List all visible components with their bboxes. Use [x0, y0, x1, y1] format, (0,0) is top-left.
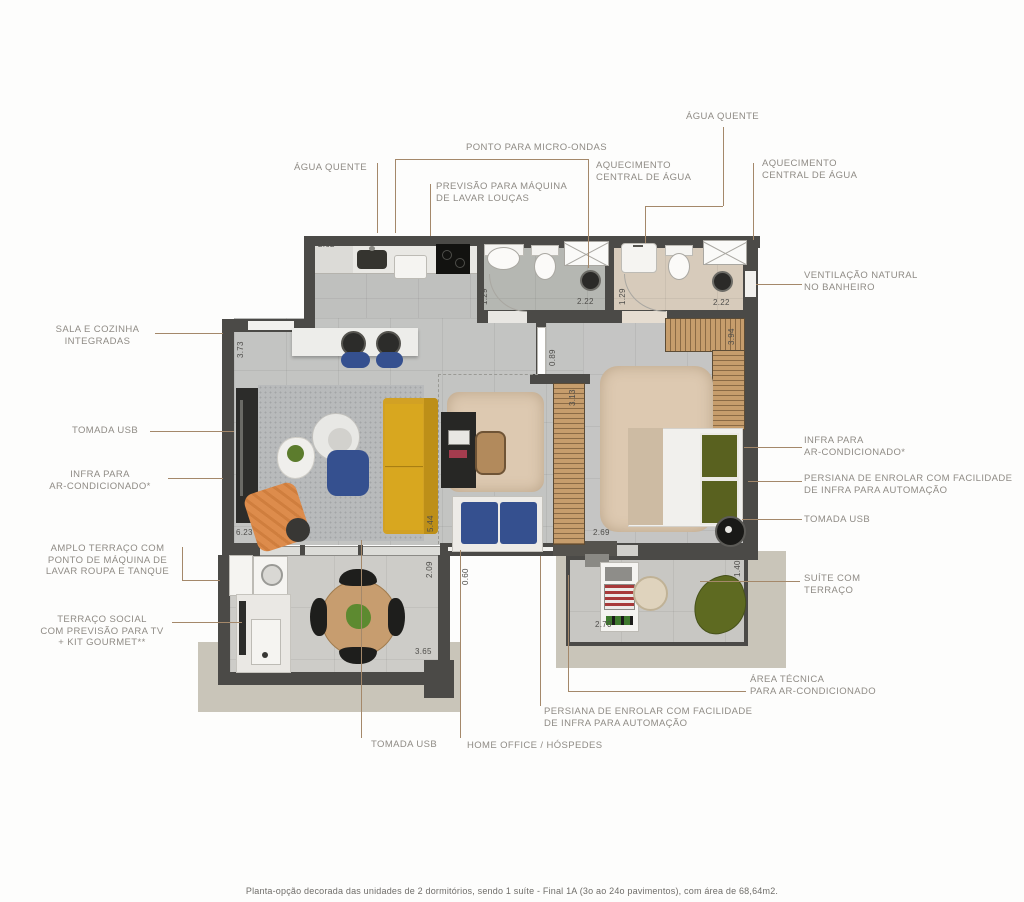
sliding-door-mullion-1	[300, 545, 305, 555]
dim-2-70: 2.70	[595, 620, 612, 629]
wall-kitchen-bath	[477, 244, 484, 318]
leader-infra-left	[168, 478, 223, 479]
label-ponto-micro-ondas: PONTO PARA MICRO-ONDAS	[466, 142, 607, 154]
washing-machine-drum	[261, 564, 283, 586]
dim-2-22-b: 2.22	[713, 298, 730, 307]
dim-2-62: 2.62	[318, 240, 335, 249]
leader-agua-quente-top-v1	[723, 127, 724, 206]
office-desk-item	[449, 450, 467, 458]
leader-sala-cozinha	[155, 333, 223, 334]
bath-suite-tap	[633, 245, 643, 247]
dim-6-23: 6.23	[236, 528, 253, 537]
laundry-tank	[229, 555, 253, 596]
bath-suite-shower	[703, 240, 747, 265]
sofa-bed-cushion-1	[461, 502, 498, 544]
label-tomada-usb-right: TOMADA USB	[804, 514, 870, 526]
sofa-bed-cushion-2	[500, 502, 537, 544]
bath-social-basin	[487, 247, 520, 270]
bar-stool-1	[341, 352, 370, 368]
label-persiana-right: PERSIANA DE ENROLAR COM FACILIDADE DE IN…	[804, 473, 1012, 496]
kitchen-faucet	[369, 246, 375, 251]
terrace-grill	[251, 619, 281, 665]
door-gap-bath-social	[488, 311, 527, 323]
leader-ponto-v2	[588, 159, 589, 268]
dim-1-29-b: 1.29	[618, 288, 627, 305]
pouf-dark	[286, 518, 310, 542]
window-bathroom-ventilation	[745, 271, 756, 297]
bath-suite-basin	[621, 243, 657, 273]
office-boundary-dashed-v	[438, 374, 439, 544]
terrace-tv	[239, 601, 246, 655]
cooktop-oven	[436, 244, 470, 274]
leader-previsao	[430, 184, 431, 236]
pouf-blue	[327, 450, 369, 496]
leader-amplo-v	[182, 547, 183, 581]
office-chair	[475, 431, 506, 475]
bath-suite-water-heater	[712, 271, 733, 292]
leader-ponto-v1	[395, 159, 396, 233]
suite-round-seat	[633, 576, 668, 611]
label-tomada-usb-bottom: TOMADA USB	[371, 739, 437, 751]
door-gap-bath-suite	[622, 311, 667, 323]
bath-social-water-heater	[580, 270, 601, 291]
bath-social-wc-bowl	[534, 253, 556, 280]
office-laptop	[448, 430, 470, 445]
dining-chair-north	[339, 569, 377, 586]
kitchen-counter-marble	[315, 246, 353, 273]
label-aquecimento-right: AQUECIMENTO CENTRAL DE ÁGUA	[762, 158, 857, 181]
leader-terraco-social	[172, 622, 242, 623]
sliding-door-track	[260, 546, 440, 556]
bed-blanket	[628, 428, 663, 525]
cooktop-burner-1	[442, 250, 452, 260]
dim-0-89: 0.89	[548, 349, 557, 366]
dining-chair-east	[388, 598, 405, 636]
dishwasher	[394, 255, 427, 279]
leader-persiana-bottom	[540, 556, 541, 706]
coffee-table-tray	[328, 428, 352, 452]
label-previsao-lava-loucas: PREVISÃO PARA MÁQUINA DE LAVAR LOUÇAS	[436, 181, 567, 204]
dim-1-40: 1.40	[733, 560, 742, 577]
leader-area-tecnica-h	[568, 691, 746, 692]
dim-3-73: 3.73	[236, 341, 245, 358]
leader-amplo-h	[182, 580, 220, 581]
leader-tomada-left	[150, 431, 234, 432]
label-tomada-usb-left: TOMADA USB	[60, 425, 150, 437]
dim-3-65: 3.65	[415, 647, 432, 656]
wall-left	[222, 319, 234, 555]
cooktop-burner-2	[455, 258, 465, 268]
dim-3-13: 3.13	[568, 389, 577, 406]
speaker-center	[725, 526, 732, 533]
label-home-office: HOME OFFICE / HÓSPEDES	[467, 740, 602, 752]
dim-0-60: 0.60	[461, 568, 470, 585]
label-sala-cozinha: SALA E COZINHA INTEGRADAS	[40, 324, 155, 347]
leader-agua-quente-top-h	[645, 206, 723, 207]
window-living	[248, 321, 294, 330]
label-agua-quente-left: ÁGUA QUENTE	[294, 162, 367, 174]
wall-kitchen-left	[304, 236, 315, 331]
closet-slats-right	[712, 350, 745, 430]
label-area-tecnica: ÁREA TÉCNICA PARA AR-CONDICIONADO	[750, 674, 876, 697]
terrace-grill-knob	[262, 652, 268, 658]
leader-aquecimento-right	[753, 163, 754, 240]
bath-social-shower	[564, 241, 609, 266]
kitchen-sink	[357, 250, 387, 269]
dim-5-44: 5.44	[426, 515, 435, 532]
leader-agua-quente-left	[377, 163, 378, 233]
label-amplo-terraco: AMPLO TERRAÇO COM PONTO DE MÁQUINA DE LA…	[35, 543, 180, 578]
label-ventilacao: VENTILAÇÃO NATURAL NO BANHEIRO	[804, 270, 918, 293]
slat-divider-office-bedroom	[553, 383, 585, 545]
dim-2-09: 2.09	[425, 561, 434, 578]
dim-3-94: 3.94	[727, 328, 736, 345]
label-persiana-bottom: PERSIANA DE ENROLAR COM FACILIDADE DE IN…	[544, 706, 752, 729]
tv-screen	[240, 400, 243, 496]
entry-door-leaf	[537, 327, 546, 375]
suite-gourmet-top	[605, 567, 632, 581]
side-table-plant	[287, 445, 304, 462]
dim-2-69: 2.69	[593, 528, 610, 537]
bar-stool-2	[376, 352, 403, 368]
leader-agua-quente-top-v2	[645, 206, 646, 243]
label-infra-ar-left: INFRA PARA AR-CONDICIONADO*	[30, 469, 170, 492]
leader-tomada-right	[742, 519, 802, 520]
dining-centerpiece-plant	[346, 604, 371, 629]
dining-chair-west	[310, 598, 327, 636]
leader-ventilacao	[756, 284, 802, 285]
leader-ponto-h	[395, 159, 588, 160]
pillar	[424, 660, 454, 698]
office-boundary-dashed-h	[438, 374, 538, 375]
leader-infra-right	[744, 447, 802, 448]
label-agua-quente-top: ÁGUA QUENTE	[686, 111, 759, 123]
sofa-yellow-back	[424, 398, 438, 534]
sofa-yellow-cushion-1	[385, 404, 423, 467]
bath-suite-wc-bowl	[668, 253, 690, 280]
label-aquecimento-mid: AQUECIMENTO CENTRAL DE ÁGUA	[596, 160, 691, 183]
label-infra-ar-right: INFRA PARA AR-CONDICIONADO*	[804, 435, 905, 458]
label-terraco-social: TERRAÇO SOCIAL COM PREVISÃO PARA TV + KI…	[28, 614, 176, 649]
floor-plan-page: ÁGUA QUENTE AQUECIMENTO CENTRAL DE ÁGUA …	[0, 0, 1024, 902]
bed-pillow-1	[700, 433, 739, 479]
leader-persiana-right	[748, 481, 802, 482]
leader-area-tecnica-v	[568, 575, 569, 691]
dim-1-29-a: 1.29	[480, 288, 489, 305]
sofa-yellow-cushion-2	[385, 468, 423, 530]
label-suite-terraco: SUÍTE COM TERRAÇO	[804, 573, 860, 596]
suite-gourmet-minibar	[604, 584, 635, 610]
wall-terrace-bottom	[218, 672, 450, 685]
plan-caption: Planta-opção decorada das unidades de 2 …	[0, 886, 1024, 896]
leader-suite-terraco	[700, 581, 800, 582]
dim-2-22-a: 2.22	[577, 297, 594, 306]
leader-tomada-bottom	[361, 540, 362, 738]
